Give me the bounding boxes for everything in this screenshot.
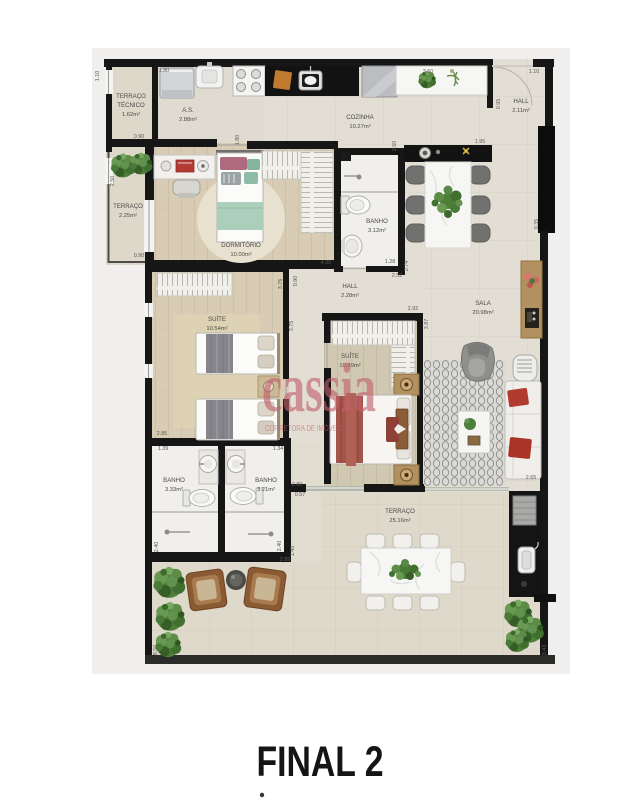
- svg-text:1.62m²: 1.62m²: [122, 112, 140, 118]
- svg-text:2.74: 2.74: [404, 261, 410, 272]
- svg-text:3.76: 3.76: [278, 279, 284, 290]
- svg-text:1.80: 1.80: [235, 135, 241, 146]
- svg-text:2.25m²: 2.25m²: [119, 213, 137, 219]
- svg-text:SALA: SALA: [475, 300, 492, 307]
- svg-text:0.90: 0.90: [293, 276, 299, 287]
- svg-text:cassia: cassia: [262, 350, 376, 427]
- svg-text:1.39: 1.39: [158, 446, 169, 452]
- svg-text:0.90: 0.90: [134, 253, 145, 259]
- svg-text:3.12m²: 3.12m²: [368, 228, 386, 234]
- svg-text:2.92: 2.92: [408, 306, 419, 312]
- svg-text:1.10: 1.10: [95, 71, 101, 82]
- svg-text:0.95: 0.95: [496, 99, 502, 110]
- svg-text:2.65: 2.65: [526, 475, 537, 481]
- svg-text:A.S.: A.S.: [182, 107, 194, 114]
- svg-text:1.95: 1.95: [475, 139, 486, 145]
- svg-text:TERRAÇO: TERRAÇO: [385, 508, 415, 515]
- svg-text:2.50: 2.50: [392, 141, 398, 152]
- svg-text:10.27m²: 10.27m²: [349, 124, 370, 130]
- svg-text:2.80: 2.80: [292, 482, 303, 488]
- svg-text:0.57: 0.57: [295, 492, 306, 498]
- svg-text:1.80: 1.80: [159, 68, 170, 74]
- svg-text:3.21m²: 3.21m²: [257, 487, 275, 493]
- svg-text:2.52: 2.52: [392, 273, 403, 279]
- svg-text:25.16m²: 25.16m²: [389, 518, 410, 524]
- svg-text:4.00: 4.00: [321, 260, 332, 266]
- svg-text:10.54m²: 10.54m²: [206, 326, 227, 332]
- svg-text:3.87: 3.87: [424, 319, 430, 330]
- svg-text:HALL: HALL: [513, 98, 529, 105]
- svg-text:2.85: 2.85: [157, 431, 168, 437]
- svg-text:1.45: 1.45: [290, 546, 296, 557]
- svg-text:BANHO: BANHO: [163, 477, 185, 484]
- svg-text:HALL: HALL: [342, 283, 358, 290]
- svg-text:2.11m²: 2.11m²: [512, 108, 530, 114]
- svg-text:0.35: 0.35: [534, 219, 540, 230]
- svg-text:DORMITÓRIO: DORMITÓRIO: [221, 242, 261, 249]
- svg-text:3.43: 3.43: [542, 645, 548, 656]
- svg-text:10.00m²: 10.00m²: [230, 252, 251, 258]
- svg-text:FINAL 2: FINAL 2: [257, 738, 384, 786]
- svg-text:3.75: 3.75: [289, 321, 295, 332]
- svg-text:SUÍTE: SUÍTE: [208, 316, 226, 323]
- svg-text:8.50: 8.50: [153, 645, 159, 656]
- svg-text:COZINHA: COZINHA: [346, 114, 374, 121]
- svg-text:20.98m²: 20.98m²: [472, 310, 493, 316]
- svg-text:TERRAÇO: TERRAÇO: [113, 203, 143, 210]
- svg-text:TÉCNICO: TÉCNICO: [117, 102, 145, 109]
- svg-text:3.33m²: 3.33m²: [165, 487, 183, 493]
- svg-text:2.28m²: 2.28m²: [341, 293, 359, 299]
- svg-text:3.60: 3.60: [423, 69, 434, 75]
- svg-text:0.90: 0.90: [134, 134, 145, 140]
- svg-text:1.28: 1.28: [385, 259, 396, 265]
- svg-text:BANHO: BANHO: [366, 218, 388, 225]
- svg-text:2.99: 2.99: [280, 557, 291, 563]
- svg-text:2.50: 2.50: [110, 176, 116, 187]
- svg-text:2.40: 2.40: [277, 541, 283, 552]
- svg-text:CORRETORA DE IMÓVEIS: CORRETORA DE IMÓVEIS: [265, 423, 343, 433]
- svg-text:BANHO: BANHO: [255, 477, 277, 484]
- svg-text:1.10: 1.10: [529, 69, 540, 75]
- svg-text:TERRAÇO: TERRAÇO: [116, 93, 146, 100]
- svg-text:1.34: 1.34: [273, 446, 284, 452]
- svg-text:2.40: 2.40: [154, 542, 160, 553]
- svg-text:2.88m²: 2.88m²: [179, 117, 197, 123]
